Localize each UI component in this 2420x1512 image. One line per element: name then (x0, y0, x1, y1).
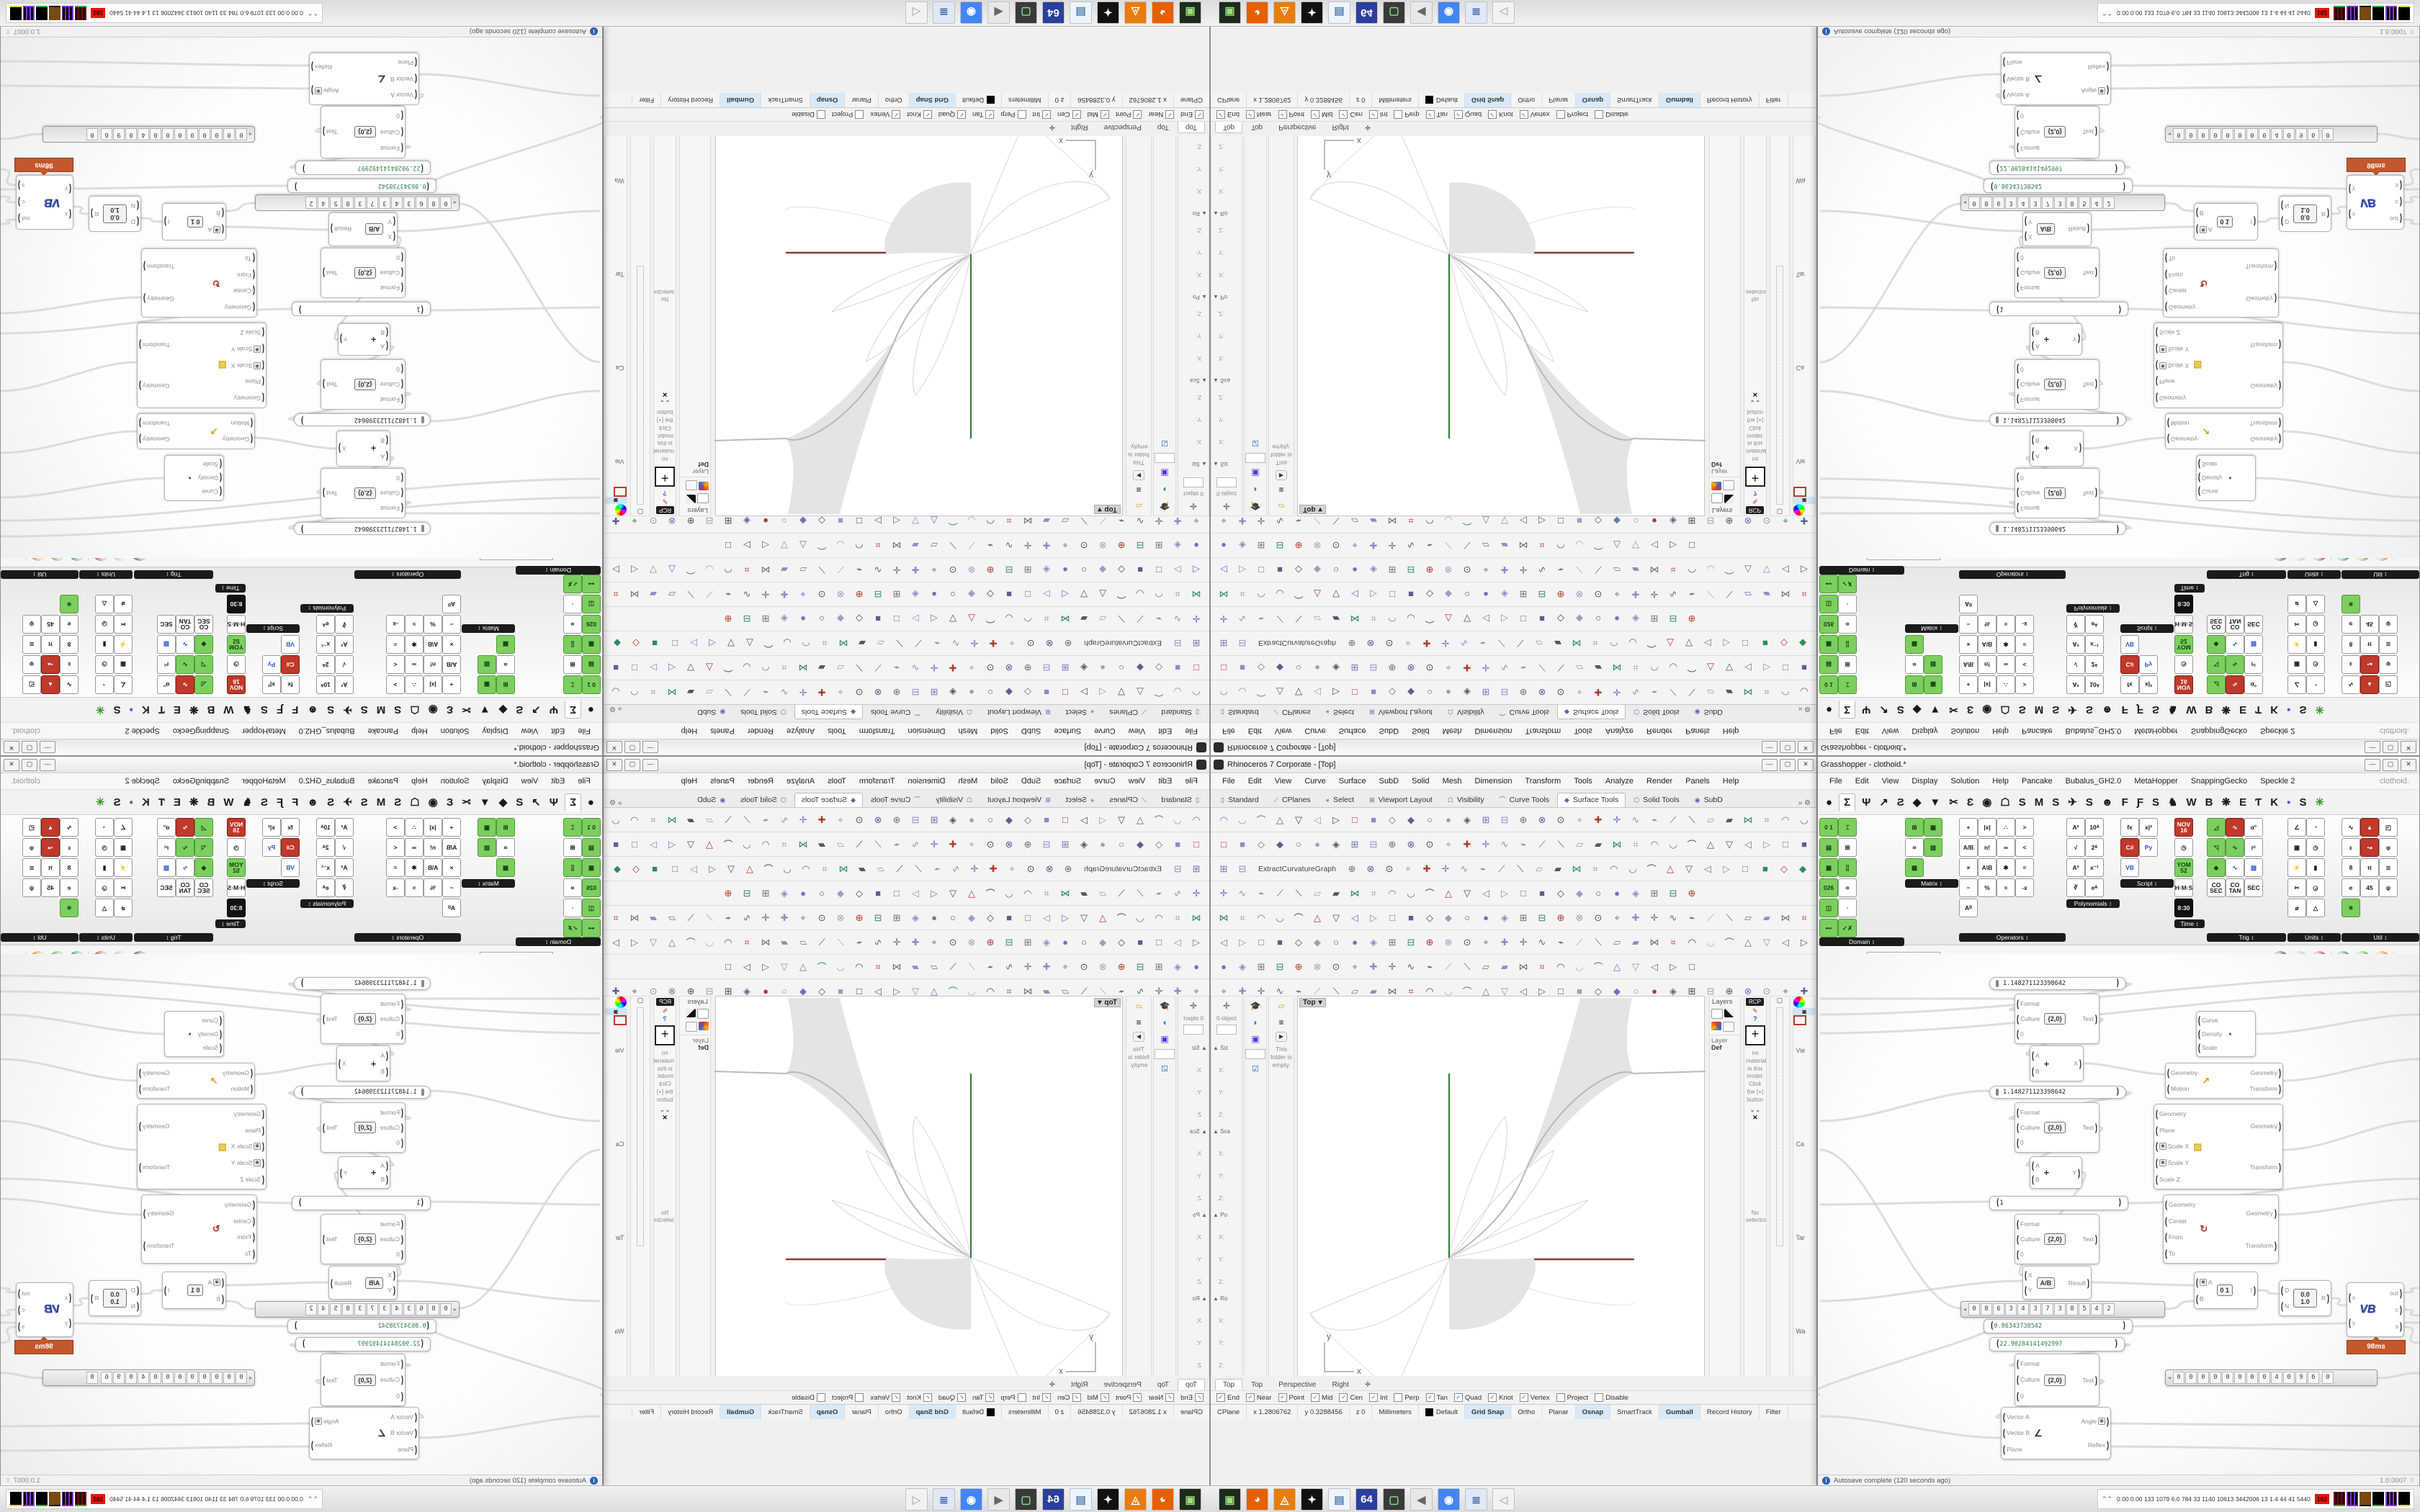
palette-group-label[interactable]: Time ↕ (2174, 584, 2205, 593)
toolbar-icon[interactable]: ▽ (1290, 811, 1307, 829)
port-jack[interactable]: ( (220, 1028, 222, 1039)
toolbar-icon[interactable]: ▱ (832, 660, 849, 677)
toolbar-icon[interactable]: ∿ (1402, 537, 1420, 554)
port-jack[interactable]: ( (220, 487, 222, 498)
port-jack[interactable]: ( (69, 1317, 71, 1328)
toolbar-icon[interactable]: ∿ (1533, 934, 1551, 951)
gh-menu-edit[interactable]: Edit (545, 725, 570, 737)
palette-component-icon[interactable]: YOM 52 (227, 858, 246, 877)
status-default[interactable]: Default (955, 93, 1001, 107)
port-jack[interactable]: ) (323, 379, 325, 390)
gh-tab-icon-27[interactable]: ▪ (127, 703, 135, 717)
toolbar-icon[interactable]: ⊗ (1362, 635, 1379, 652)
gh-tab-icon-17[interactable]: F (2120, 703, 2130, 717)
toolbar-icon[interactable]: ▱ (663, 909, 681, 927)
gh-component-digit-scroller[interactable]: ◂086343738542 (1960, 1301, 2165, 1318)
palette-component-icon[interactable]: ✂ (2287, 615, 2306, 634)
port-jack[interactable]: ) (302, 163, 305, 174)
materials-panel[interactable]: RCP ✎ ? + no material in this model. Cli… (653, 996, 676, 1419)
toolbar-icon[interactable]: ▷ (1796, 562, 1813, 579)
dial-digit[interactable]: 4 (391, 1303, 403, 1315)
toolbar-icon[interactable]: ◇ (1019, 811, 1036, 829)
gh-menu-speckle-2[interactable]: Speckle 2 (120, 725, 166, 737)
palette-component-icon[interactable]: ▦ (114, 838, 133, 857)
port-jack[interactable]: ( (2281, 1285, 2283, 1296)
port-jack[interactable]: ) (2118, 304, 2122, 315)
status-smarttrack[interactable]: SmartTrack (1610, 93, 1659, 107)
layer-list[interactable]: Layer Def (1710, 1035, 1740, 1053)
palette-component-icon[interactable]: Py (2139, 655, 2158, 674)
palette-component-icon[interactable]: ψ (22, 878, 41, 897)
toolbar-icon[interactable]: ✛ (888, 934, 905, 951)
palette-component-icon[interactable]: ≈ (405, 878, 423, 897)
port-jack[interactable]: ) (2095, 127, 2097, 138)
palette-component-icon[interactable]: ∙ (563, 899, 582, 917)
dial-digit[interactable]: 8 (428, 1303, 439, 1315)
toolbar-icon[interactable]: ⊞ (1252, 958, 1270, 976)
menu-panels[interactable]: Panels (1680, 725, 1716, 737)
port-jack[interactable]: ) (2254, 1285, 2256, 1296)
toolbar-icon[interactable]: △ (1662, 860, 1679, 878)
toolbar-icon[interactable]: ◇ (1019, 684, 1036, 701)
port-jack[interactable]: ) (323, 1122, 325, 1133)
boxedit-field[interactable] (1183, 1025, 1204, 1035)
viewport-properties-panel[interactable]: ◙ VieCaTarWa (1793, 93, 1816, 516)
dial-digit[interactable]: 0 (2246, 1372, 2258, 1384)
gh-port[interactable]: I) (164, 218, 169, 225)
gh-port[interactable]: (B (380, 437, 388, 444)
palette-component-icon[interactable]: ◆ (194, 635, 213, 654)
checkbox-icon[interactable]: ☑ (1157, 1062, 1172, 1076)
port-jack[interactable]: ( (2156, 1109, 2158, 1120)
toolbar-icon[interactable]: ○ (1113, 660, 1130, 677)
gh-component-text-format[interactable]: (Format(Culture(0{2,0}Text) (321, 1214, 405, 1264)
toolbar-icon[interactable]: ✚ (907, 562, 924, 579)
gh-port[interactable]: (Format (380, 1109, 403, 1116)
gh-port[interactable]: (Geometry (231, 1110, 264, 1117)
gh-tab-icon-22[interactable]: B (2203, 796, 2215, 809)
paintbrush-icon[interactable]: ✎ (1744, 497, 1766, 505)
toolbar-icon[interactable]: ● (1094, 836, 1111, 853)
gh-component-vb-script[interactable]: (x(yVBout)c)s) (2347, 175, 2404, 230)
rhino-tab-cplanes[interactable]: ⟋CPlanes (1267, 793, 1318, 807)
maximize-button[interactable]: ▢ (2383, 759, 2398, 771)
gh-titlebar[interactable]: Grasshopper - clothoid.* —▢✕ (1, 739, 602, 755)
gh-port[interactable]: (x (65, 212, 71, 219)
port-jack[interactable]: ( (2165, 1248, 2167, 1259)
port-jack[interactable]: ( (401, 1029, 403, 1040)
toolbar-icon[interactable]: ⟍ (944, 958, 962, 976)
palette-component-icon[interactable]: ◶ (95, 878, 114, 897)
gh-menu-help[interactable]: Help (1986, 725, 2015, 737)
toolbar-icon[interactable]: ⋈ (1739, 811, 1757, 829)
gh-port[interactable]: (Culture (2017, 490, 2040, 497)
gh-tab-icon-15[interactable]: S (325, 796, 336, 809)
gh-port[interactable]: (Format (2017, 1360, 2040, 1367)
close-button[interactable]: ✕ (4, 742, 19, 754)
toolbar-icon[interactable]: ▷ (1038, 909, 1055, 927)
menu-help[interactable]: Help (676, 725, 704, 737)
toolbar-icon[interactable]: ◁ (1057, 909, 1074, 927)
palette-group-label[interactable]: Script ↕ (2120, 624, 2174, 633)
speaker-muted-icon[interactable]: ◁ (1492, 1488, 1515, 1511)
gh-port[interactable]: (Geometry (2167, 436, 2197, 443)
port-jack[interactable]: ( (401, 1138, 403, 1148)
toolbar-icon[interactable]: ○ (1590, 885, 1607, 902)
toolbar-icon[interactable]: ▰ (1549, 860, 1567, 878)
chrome-icon[interactable]: ◉ (960, 1, 982, 24)
palette-component-icon[interactable]: ▤ (1819, 655, 1838, 674)
gh-port[interactable]: (Culture (380, 1376, 403, 1383)
dial-grip[interactable]: ◂ (2168, 1374, 2171, 1381)
port-jack[interactable]: ( (2165, 302, 2167, 312)
gh-port[interactable]: Text) (323, 1015, 338, 1022)
add-material-button[interactable]: + (655, 1025, 675, 1045)
port-jack[interactable]: ( (415, 89, 417, 100)
palette-group-label[interactable]: Operators ↕ (354, 570, 461, 579)
wallpaper-icon[interactable] (1793, 487, 1806, 497)
palette-component-icon[interactable]: 8:30 (2174, 595, 2193, 613)
close-button[interactable]: ✕ (2401, 742, 2416, 754)
status-cplane[interactable]: CPlane (1211, 1405, 1247, 1419)
display-monitor-icon[interactable]: ▣ (1248, 1032, 1263, 1046)
toolbar-icon[interactable]: ⌗ (1234, 586, 1251, 603)
list-panel[interactable]: ▢ (1770, 996, 1791, 1419)
gh-port[interactable]: out) (2390, 215, 2402, 222)
gh-tab-icon-16[interactable]: ☻ (2099, 703, 2115, 717)
palette-component-icon[interactable]: ∿ (2226, 675, 2244, 694)
port-jack[interactable]: ( (2017, 998, 2019, 1009)
palette-component-icon[interactable]: Aᴮ (442, 899, 461, 917)
port-jack[interactable]: ) (2275, 1207, 2277, 1218)
toolbar-icon[interactable]: ✚ (1458, 660, 1476, 677)
gh-port[interactable]: (Curve (198, 488, 222, 495)
rhino-tab-visibility[interactable]: ☖Visibility (928, 705, 980, 719)
monitor-expand-icon[interactable]: ⌃⌃ (308, 12, 318, 15)
osnap-project[interactable]: Project (832, 110, 864, 119)
gh-tab-icon-13[interactable]: S (2050, 703, 2061, 717)
toolbar-icon[interactable]: ▰ (1327, 611, 1345, 628)
toolbar-icon[interactable]: ▽ (1627, 537, 1644, 554)
palette-component-icon[interactable]: ⊞ (1838, 655, 1857, 674)
toolbar-icon[interactable]: ■ (1533, 611, 1551, 628)
gh-tab-icon-5[interactable]: ◆ (1911, 703, 1924, 717)
toolbar-icon[interactable]: ⊞ (1384, 934, 1401, 951)
toolbar-icon[interactable]: ⌒ (1683, 836, 1700, 853)
gh-tab-icon-23[interactable]: ❋ (187, 796, 201, 809)
speaker-muted-icon[interactable]: ◁ (1492, 1, 1515, 24)
list-panel[interactable]: ▢ (1770, 93, 1791, 516)
port-jack[interactable]: ) (2078, 1167, 2080, 1178)
gh-component-rotate[interactable]: (Geometry(Center(From(To↻Geometry)Transf… (141, 1194, 257, 1264)
minimize-button[interactable]: — (642, 742, 658, 754)
palette-component-icon[interactable]: × (1959, 858, 1978, 877)
dial-digit[interactable]: 0 (2283, 128, 2295, 140)
gh-component-text-format[interactable]: (Format(Culture(0{2,0}Text) (321, 359, 405, 410)
color-wheel-icon[interactable] (615, 996, 627, 1008)
port-jack[interactable]: ( (262, 1141, 264, 1152)
port-jack[interactable]: ( (220, 1014, 222, 1025)
minimize-button[interactable]: — (642, 759, 658, 771)
port-jack[interactable]: ( (2003, 1428, 2005, 1439)
port-jack[interactable]: ( (2017, 1359, 2019, 1369)
gh-tab-icon-9[interactable]: ◉ (426, 703, 440, 717)
viewport-label[interactable]: Top▾ (1299, 505, 1326, 514)
gh-tab-icon-21[interactable]: W (221, 703, 236, 717)
close-button[interactable]: ✕ (606, 742, 622, 754)
toolbar-icon[interactable]: ⟍ (891, 635, 908, 652)
gh-tab-icon-28[interactable]: S (112, 703, 123, 717)
rhino-tab-solid-tools[interactable]: ⬡Solid Tools (733, 793, 793, 807)
gh-tab-icon-2[interactable]: Ψ (547, 703, 560, 717)
toolbar-icon[interactable]: ◠ (1019, 885, 1036, 902)
port-jack[interactable]: ( (401, 395, 403, 405)
toolbar-icon[interactable]: ● (794, 611, 812, 628)
drive-app-icon[interactable]: ▣ (1219, 1, 1241, 24)
toolbar-icon[interactable]: △ (794, 958, 812, 976)
gh-menu-display[interactable]: Display (1906, 775, 1943, 787)
gh-menu-pancake[interactable]: Pancake (362, 725, 404, 737)
port-jack[interactable]: ( (262, 360, 264, 371)
toolbar-icon[interactable]: ⋈ (1188, 909, 1205, 927)
toolbar-icon[interactable]: ⋈ (794, 836, 812, 853)
gh-port[interactable]: (Plane (2156, 1127, 2189, 1134)
toolbar-icon[interactable]: ⊙ (1327, 958, 1345, 976)
toolbar-icon[interactable]: ⌗ (1796, 586, 1813, 603)
gh-port[interactable]: (0 (380, 254, 403, 261)
palette-component-icon[interactable]: ε (60, 838, 79, 857)
gh-port[interactable]: (Format (2017, 1109, 2040, 1116)
osnap-checkbox[interactable] (817, 1393, 825, 1402)
toolbar-icon[interactable]: ⊟ (1000, 562, 1018, 579)
toolbar-icon[interactable]: ◆ (1794, 635, 1811, 652)
gh-tab-icon-1[interactable]: Σ (1839, 701, 1855, 719)
status-filter[interactable]: Filter (1760, 93, 1788, 107)
palette-component-icon[interactable]: 8:30 (2174, 899, 2193, 917)
toolbar-icon[interactable]: ○ (944, 586, 962, 603)
close-button[interactable]: ✕ (1798, 742, 1814, 754)
osnap-checkbox[interactable] (855, 110, 864, 119)
port-jack[interactable]: ( (401, 1249, 403, 1260)
gh-tab-icon-17[interactable]: F (290, 703, 300, 717)
toolbar-icon[interactable]: ⊗ (1309, 537, 1326, 554)
palette-group-label[interactable]: Operators ↕ (1959, 933, 2066, 942)
toolbar-icon[interactable]: ✛ (1515, 562, 1532, 579)
palette-component-icon[interactable]: VB (281, 635, 300, 654)
toolbar-icon[interactable]: ◁ (1188, 934, 1205, 951)
training-icon[interactable]: 🎓 (1248, 499, 1263, 513)
toolbar-icon[interactable]: ◠ (1150, 909, 1168, 927)
gh-component-text-format[interactable]: (Format(Culture(0{2,0}Text) (321, 468, 405, 518)
toolbar-icon[interactable]: ✚ (907, 934, 924, 951)
toolbar-icon[interactable]: ⊞ (1515, 586, 1532, 603)
toolbar-icon[interactable]: ⟍ (1512, 860, 1529, 878)
toolbar-icon[interactable]: ▰ (1590, 836, 1607, 853)
gh-port[interactable]: (Format (2017, 1000, 2040, 1007)
toolbar-icon[interactable]: ◡ (1796, 811, 1813, 829)
gh-port[interactable]: Transform) (143, 1242, 174, 1249)
toolbar-icon[interactable]: ⟍ (682, 909, 699, 927)
dial-digit[interactable]: 0 (1968, 1303, 1980, 1315)
rhino-tab-visibility[interactable]: ☖Visibility (928, 793, 980, 807)
palette-component-icon[interactable]: VB (2120, 635, 2139, 654)
toolbar-icon[interactable]: ⊙ (1590, 586, 1607, 603)
toolbar-icon[interactable]: ◠ (797, 635, 815, 652)
port-jack[interactable]: ( (2017, 379, 2019, 390)
toolbar-icon[interactable]: ⌒ (1150, 811, 1168, 829)
toolbar-icon[interactable]: □ (1346, 811, 1363, 829)
port-jack[interactable]: ( (2003, 58, 2005, 68)
boxedit-panel[interactable]: ✛ 0 object ▲ SizX:Y:Z:▲ ScaX:Y:Z:▲ PoX:Y… (1178, 93, 1209, 516)
toolbar-icon[interactable]: ✚ (813, 811, 830, 829)
palette-group-label[interactable]: Matrix ↕ (1905, 624, 1958, 633)
gh-port[interactable]: (Center (2165, 287, 2195, 294)
gh-tab-icon-29[interactable]: ✳ (2313, 796, 2326, 809)
toolbar-icon[interactable]: ⊗ (1041, 635, 1058, 652)
palette-component-icon[interactable]: ◶ (95, 615, 114, 634)
gh-menu-solution[interactable]: Solution (1945, 725, 1985, 737)
toolbar-icon[interactable]: ◡ (738, 660, 756, 677)
gh-port[interactable]: Reflex) (311, 1441, 332, 1449)
gh-port[interactable]: Text) (323, 1236, 338, 1243)
palette-component-icon[interactable]: Aᴮ (442, 595, 461, 613)
toolbar-icon[interactable]: ∿ (869, 562, 887, 579)
toolbar-icon[interactable]: ◡ (1131, 586, 1149, 603)
toolbar-icon[interactable]: ▰ (776, 562, 793, 579)
palette-group-label[interactable]: Matrix ↕ (462, 879, 515, 888)
palette-component-icon[interactable]: ◷ (227, 655, 246, 674)
toolbar-icon[interactable]: ▱ (1608, 934, 1626, 951)
toolbar-icon[interactable]: ⊕ (1421, 934, 1438, 951)
dial-digit[interactable]: 0 (1968, 197, 1980, 209)
palette-group-label[interactable]: Util ↕ (2341, 933, 2419, 942)
gh-component-remap[interactable]: (D(N0.0 1.0R) (89, 1280, 141, 1316)
gh-component-text-format[interactable]: (Format(Culture(0{2,0}Text) (321, 994, 405, 1044)
palette-component-icon[interactable]: √ (2066, 655, 2085, 674)
osnap-end[interactable]: ✓End (1216, 110, 1240, 119)
toolbar-icon[interactable]: ◆ (1000, 811, 1018, 829)
rhino-viewport-top[interactable]: Top▾ y x (715, 103, 1123, 516)
toolbar-icon[interactable]: ⊟ (1038, 836, 1055, 853)
palette-group-label[interactable]: Units ↕ (79, 933, 133, 942)
palette-component-icon[interactable]: YOM 52 (227, 635, 246, 654)
toolbar-icon[interactable]: □ (1057, 684, 1074, 701)
toolbar-icon[interactable]: ▰ (1549, 635, 1567, 652)
gh-port[interactable]: Y) (2072, 336, 2080, 343)
toolbar-icon[interactable]: ◠ (1150, 586, 1168, 603)
gh-component-digit-scroller[interactable]: ◂0000000040960 (2165, 126, 2378, 143)
rhino-tab-subd[interactable]: ◉SubD (690, 793, 732, 807)
toolbar-icon[interactable]: ◁ (926, 885, 943, 902)
toolbar-icon[interactable]: ◆ (1131, 660, 1149, 677)
toolbar-icon[interactable]: ✚ (1590, 811, 1607, 829)
port-jack[interactable]: ) (2400, 1287, 2402, 1298)
osnap-checkbox[interactable]: ✓ (1195, 110, 1204, 119)
close-button[interactable]: ✕ (1798, 759, 1814, 771)
toolbar-icon[interactable]: ✚ (1418, 860, 1435, 878)
palette-component-icon[interactable]: ≈ (1996, 615, 2015, 634)
menu-lines-icon[interactable]: ≡ (1274, 1015, 1289, 1030)
toolbar-icon[interactable]: ▽ (645, 562, 662, 579)
port-jack[interactable]: ( (2198, 1043, 2200, 1053)
toolbar-icon[interactable]: ⌗ (738, 934, 756, 951)
toolbar-icon[interactable]: ⊕ (1343, 635, 1361, 652)
close-button[interactable]: ✕ (606, 759, 622, 771)
dial-digit[interactable]: 0 (2173, 1372, 2184, 1384)
osnap-checkbox[interactable]: ✓ (1520, 1393, 1528, 1402)
rhino-viewport-top[interactable]: Top▾ y x (1297, 996, 1705, 1409)
palette-component-icon[interactable]: ◷ (95, 655, 114, 674)
palette-component-icon[interactable]: ◿ (194, 818, 213, 837)
toolbar-icon[interactable]: ⌗ (1038, 885, 1055, 902)
toolbar-icon[interactable]: ⌗ (1587, 635, 1604, 652)
gh-menu-pancake[interactable]: Pancake (2016, 775, 2058, 787)
toolbar-icon[interactable]: ■ (1169, 836, 1186, 853)
dial-digit[interactable]: 0 (2246, 128, 2258, 140)
port-jack[interactable]: ) (2095, 1374, 2097, 1385)
palette-component-icon[interactable]: ∿ (60, 818, 79, 837)
palette-component-icon[interactable]: ✳ (2341, 899, 2360, 917)
gh-port[interactable]: (B (380, 1176, 388, 1183)
toolbar-icon[interactable]: ⌁ (982, 958, 999, 976)
palette-component-icon[interactable]: ▤ (1819, 838, 1838, 857)
toolbar-icon[interactable]: ◁ (1057, 586, 1074, 603)
menu-subd[interactable]: SubD (1373, 775, 1405, 787)
gh-tab-icon-17[interactable]: F (290, 796, 300, 809)
palette-component-icon[interactable]: ∞ (1996, 838, 2015, 857)
gh-port[interactable]: (X (2025, 233, 2033, 240)
osnap-vertex[interactable]: ✓Vertex (870, 1393, 900, 1402)
gh-port[interactable]: (Center (2165, 1218, 2195, 1225)
toolbar-icon[interactable]: ◡ (607, 811, 624, 829)
osnap-checkbox[interactable] (1394, 110, 1402, 119)
palette-component-icon[interactable]: 8:30 (227, 899, 246, 917)
palette-component-icon[interactable]: eᴬ (316, 615, 335, 634)
menu-tools[interactable]: Tools (822, 725, 852, 737)
goldwave-icon[interactable]: 64 (1042, 1, 1065, 24)
toolbar-icon[interactable]: ∿ (1456, 635, 1473, 652)
gh-port[interactable]: (Curve (2198, 1017, 2222, 1024)
toolbar-icon[interactable]: ⊗ (963, 934, 980, 951)
dial-digit[interactable]: 0 (440, 1303, 452, 1315)
palette-component-icon[interactable]: π (41, 858, 60, 877)
toolbar-icon[interactable]: ⟋ (963, 537, 980, 554)
gh-port[interactable]: (X (2025, 1272, 2033, 1279)
status-cplane[interactable]: CPlane (1173, 1405, 1209, 1419)
gh-port[interactable]: (Plane (231, 378, 264, 385)
gh-tab-icon-20[interactable]: ♞ (2166, 796, 2179, 809)
gh-component-rotate[interactable]: (Geometry(Center(From(To↻Geometry)Transf… (2163, 1194, 2279, 1264)
toolbar-icon[interactable]: ∿ (1496, 836, 1513, 853)
toolbar-icon[interactable]: ▷ (1038, 586, 1055, 603)
toolbar-icon[interactable]: ◈ (776, 611, 793, 628)
toolbar-icon[interactable]: ⌁ (1683, 909, 1700, 927)
toolbar-icon[interactable]: ▽ (1113, 684, 1130, 701)
palette-component-icon[interactable]: ◰ (22, 818, 41, 837)
toolbar-icon[interactable]: ⟍ (1721, 586, 1738, 603)
rcp-chip[interactable]: RCP (1746, 506, 1764, 514)
toolbar-icon[interactable]: ▷ (607, 562, 624, 579)
dial-extra-digit[interactable]: 0 (86, 1372, 98, 1384)
menu-file[interactable]: File (1179, 725, 1204, 737)
gh-port[interactable]: Geometry) (139, 436, 169, 443)
palette-group-label[interactable]: Domain ↕ (516, 937, 601, 946)
toolbar-icon[interactable]: ▱ (1571, 836, 1588, 853)
toolbar-icon[interactable]: ✚ (985, 635, 1002, 652)
osnap-int[interactable]: ✓Int (1033, 1393, 1052, 1402)
palette-component-icon[interactable]: > (2015, 818, 2034, 837)
palette-component-icon[interactable]: 026 (582, 878, 601, 897)
